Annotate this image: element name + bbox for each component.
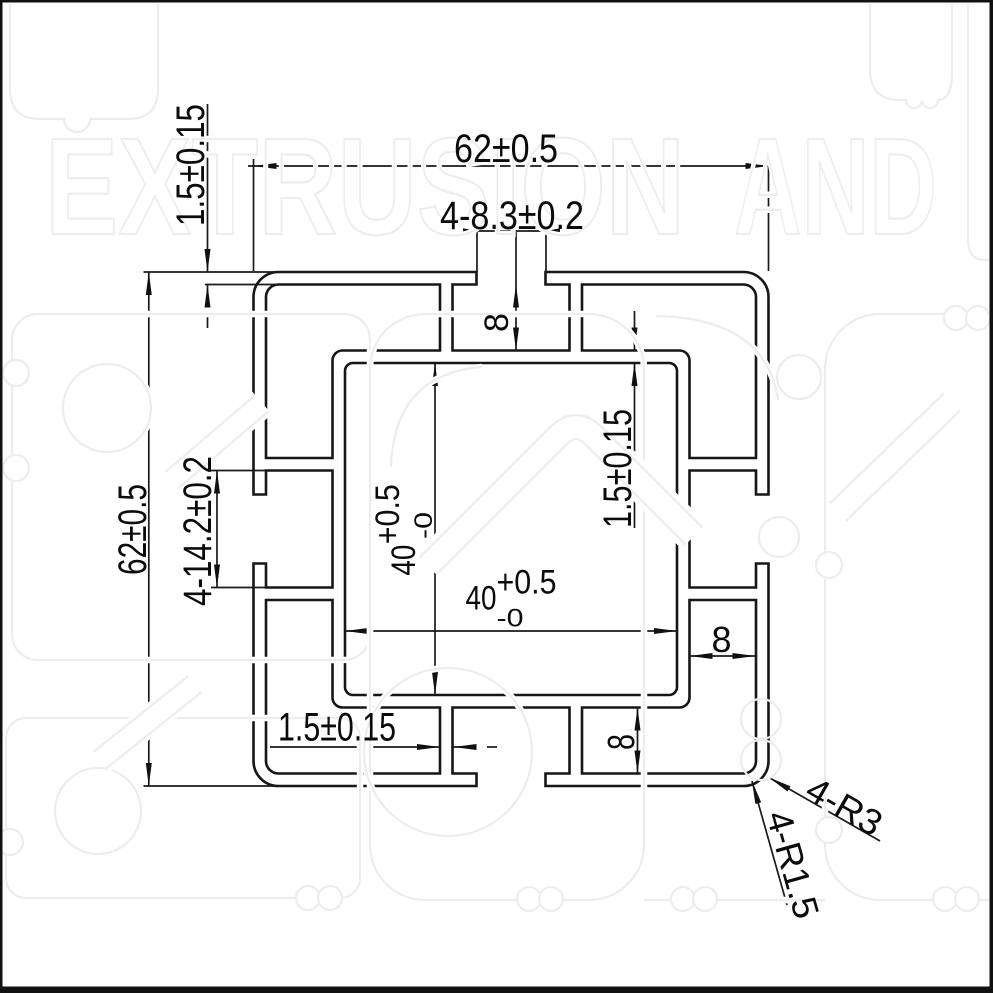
svg-text:-0: -0 (410, 512, 438, 539)
svg-text:1.5±0.15: 1.5±0.15 (596, 409, 640, 528)
svg-text:8: 8 (478, 313, 516, 332)
svg-text:8: 8 (601, 734, 643, 750)
svg-text:-0: -0 (497, 605, 524, 633)
svg-text:62±0.5: 62±0.5 (454, 127, 558, 171)
svg-text:62±0.5: 62±0.5 (111, 484, 155, 575)
svg-text:AND: AND (734, 110, 937, 264)
svg-text:EXTRUSION: EXTRUSION (45, 110, 685, 264)
svg-text:8: 8 (712, 619, 732, 660)
svg-text:+0.5: +0.5 (369, 484, 407, 544)
svg-text:4-14.2±0.2: 4-14.2±0.2 (176, 456, 220, 606)
svg-text:40: 40 (385, 545, 423, 576)
svg-text:1.5±0.15: 1.5±0.15 (169, 104, 213, 226)
svg-text:40: 40 (466, 580, 497, 618)
svg-text:4-8.3±0.2: 4-8.3±0.2 (440, 194, 584, 238)
svg-text:+0.5: +0.5 (497, 564, 557, 602)
svg-text:1.5±0.15: 1.5±0.15 (278, 706, 396, 750)
